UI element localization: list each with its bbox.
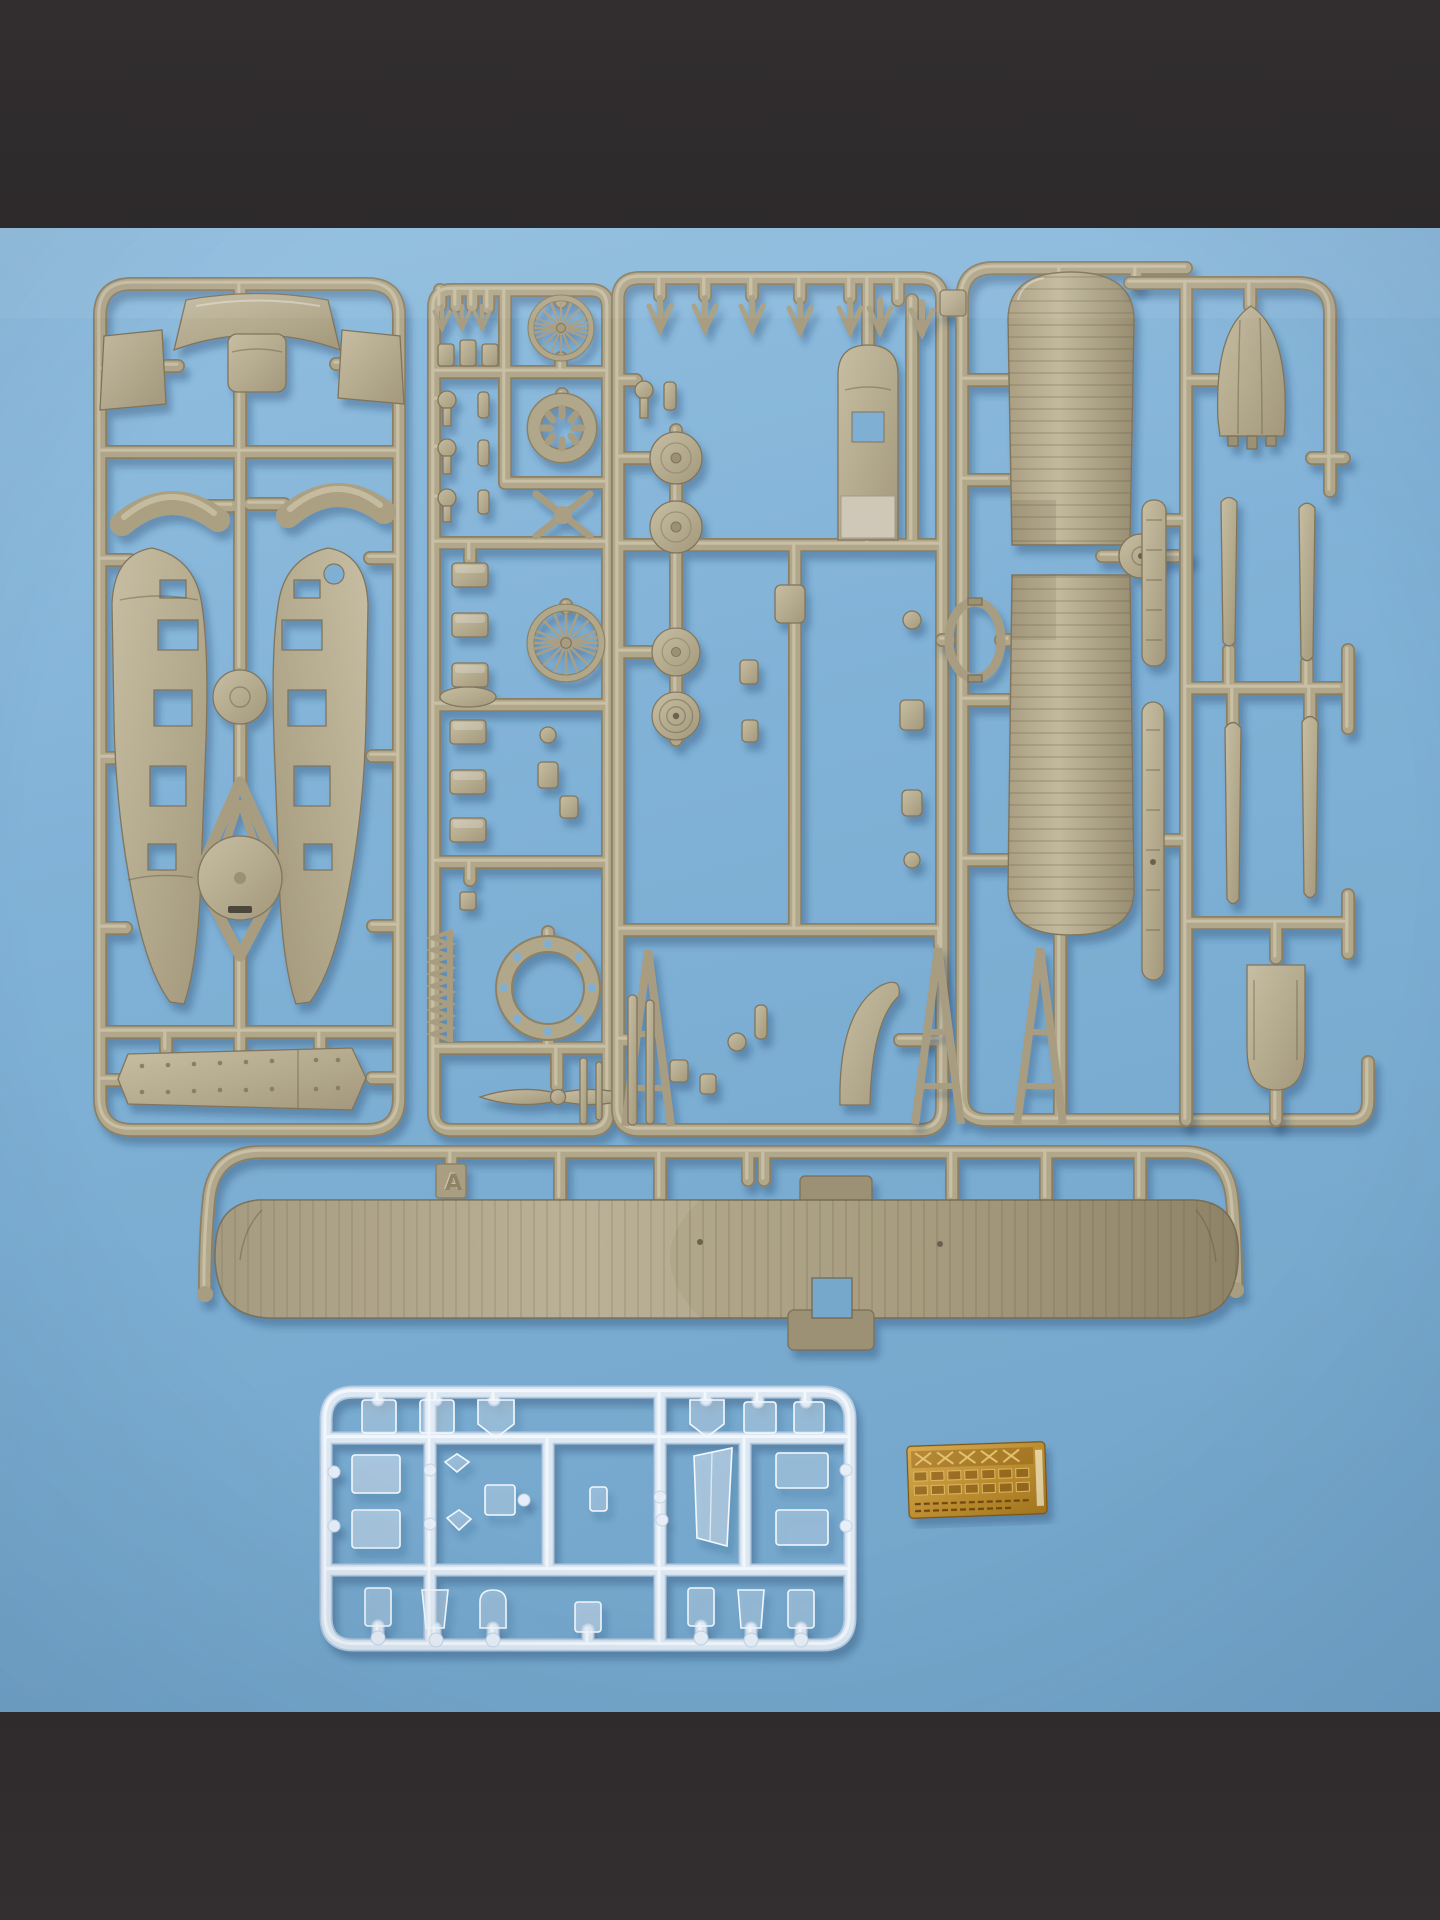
vignette xyxy=(0,228,1440,1712)
photo-content: A A xyxy=(0,228,1440,1712)
kit-photo: A A xyxy=(0,228,1440,1712)
screenshot: A A xyxy=(0,0,1440,1920)
letterbox-bottom xyxy=(0,1712,1440,1920)
letterbox-top xyxy=(0,0,1440,228)
